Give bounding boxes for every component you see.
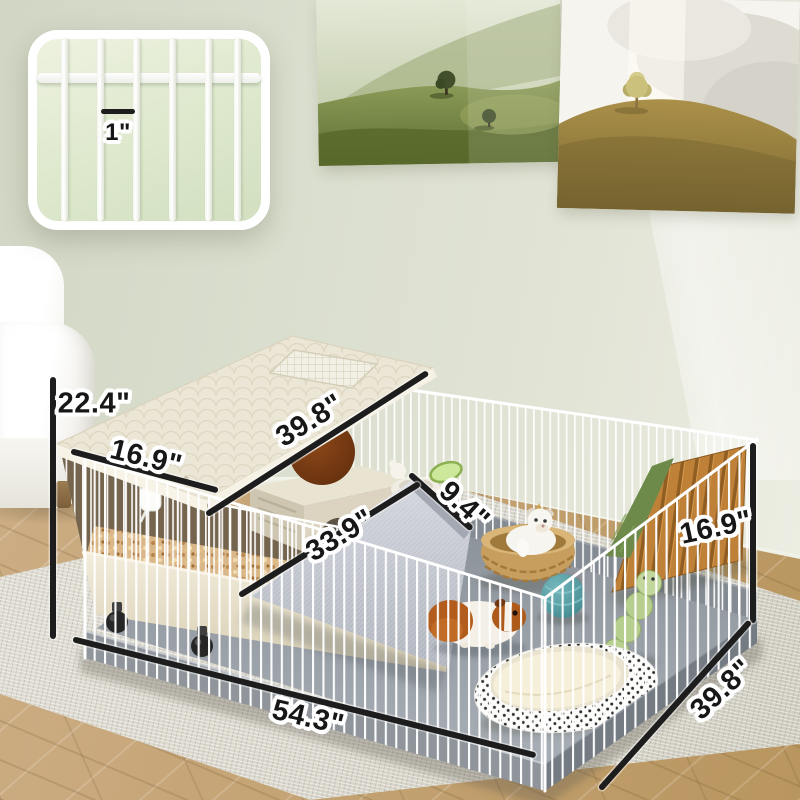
wire-spacing-inset: 1" (28, 30, 270, 230)
product-scene: 22.4" 16.9" 39.8" 9.4" 33.9" 16.9" 54.3"… (0, 0, 800, 800)
vertical-wire (205, 39, 212, 221)
vertical-wire (61, 39, 68, 221)
vertical-wire (234, 39, 241, 221)
horizontal-wire (37, 73, 261, 83)
overall-height-label: 22.4" (58, 388, 131, 421)
dim-line-overall-height (50, 377, 56, 639)
vertical-wire (169, 39, 176, 221)
inset-measure-line (101, 109, 135, 114)
vertical-wire (97, 39, 104, 221)
vertical-wire (133, 39, 140, 221)
wire-gap-label: 1" (105, 119, 131, 147)
